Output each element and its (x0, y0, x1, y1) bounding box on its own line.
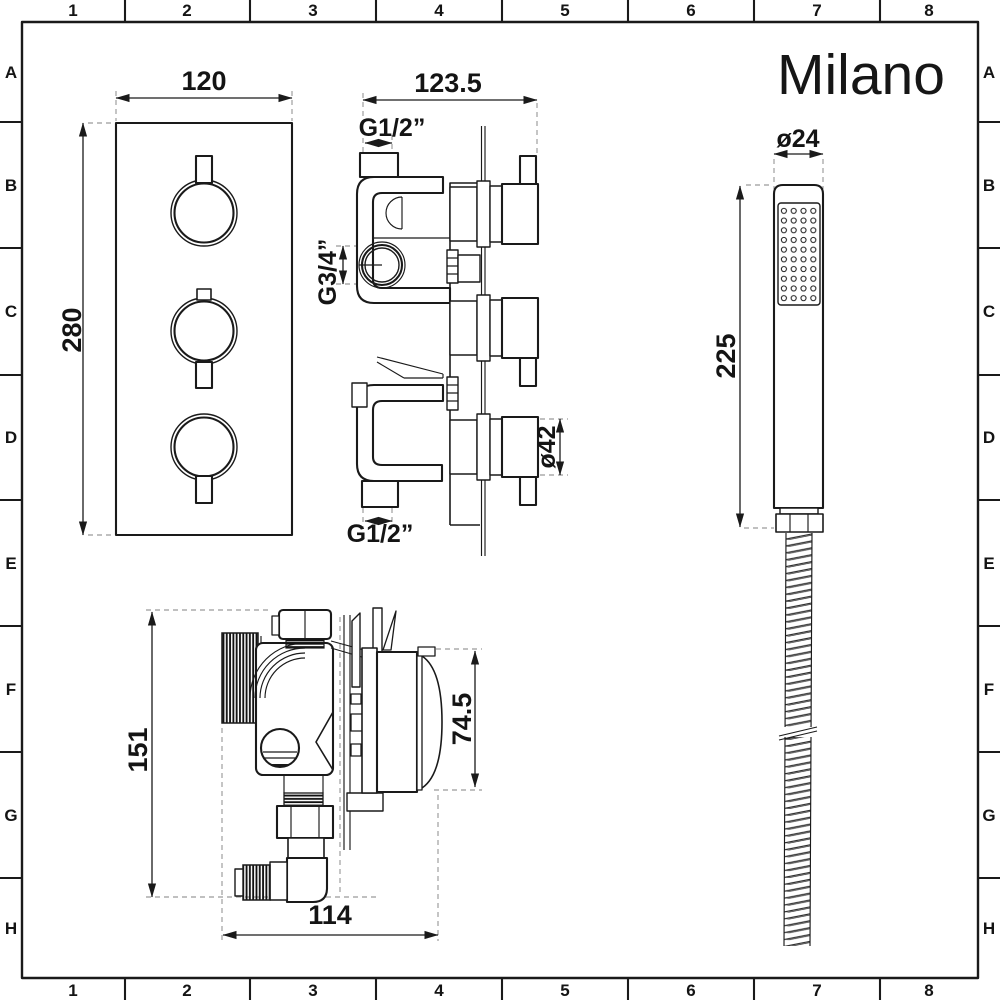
handle-body (502, 184, 538, 244)
inlet-port-bottom (362, 481, 398, 507)
dim-top-connection: G1/2” (359, 114, 426, 142)
col-label: 8 (924, 981, 933, 1000)
outlet-thread-collar (286, 639, 324, 648)
clip (351, 694, 361, 704)
body-block (458, 255, 480, 282)
row-label: H (5, 919, 17, 938)
row-label: E (5, 554, 16, 573)
logo-text: Milano (777, 43, 945, 107)
col-label: 3 (308, 981, 317, 1000)
outlet-threads-bottom (284, 793, 323, 806)
col-label: 8 (924, 1, 933, 20)
col-label: 6 (686, 981, 695, 1000)
handle-neck (490, 300, 502, 356)
bracket-tab (352, 383, 367, 407)
col-label: 2 (182, 1, 191, 20)
dim-length: 225 (711, 333, 741, 378)
row-label: G (4, 806, 17, 825)
cartridge-body (377, 652, 417, 792)
row-label: H (983, 919, 995, 938)
row-label: C (5, 302, 17, 321)
row-label: B (983, 176, 995, 195)
col-label: 3 (308, 1, 317, 20)
col-label: 1 (68, 1, 77, 20)
handle-collar (477, 414, 490, 480)
shower-hose-coil (784, 533, 812, 946)
hex-nut-flat (272, 616, 279, 635)
inlet-port-top (360, 153, 398, 177)
col-label: 6 (686, 1, 695, 20)
handle-lever (520, 358, 536, 386)
col-label: 2 (182, 981, 191, 1000)
handle-collar (477, 295, 490, 361)
hose-nut (776, 514, 823, 532)
row-label: D (5, 428, 17, 447)
cartridge-tab (418, 647, 435, 656)
row-label: B (5, 176, 17, 195)
handle-base (450, 420, 477, 474)
handle-body (502, 298, 538, 358)
row-label: F (984, 680, 994, 699)
handset-neck (780, 508, 818, 514)
mounting-plate (352, 613, 360, 687)
technical-drawing-sheet: 1 2 3 4 5 6 7 8 1 2 3 4 5 6 7 8 A B C D … (0, 0, 1000, 1000)
handle-lever (196, 476, 212, 503)
row-label: A (983, 63, 995, 82)
col-label: 7 (812, 981, 821, 1000)
handle-indicator (197, 289, 211, 300)
handle-lever (520, 156, 536, 184)
dim-head-diameter: ø24 (776, 125, 819, 153)
col-label: 1 (68, 981, 77, 1000)
dim-bottom-connection: G1/2” (347, 520, 414, 548)
handle-base (450, 301, 477, 355)
handle-collar (477, 181, 490, 247)
row-label: C (983, 302, 995, 321)
compression-nut (277, 806, 333, 838)
handle-lever (520, 477, 536, 505)
threaded-inlet-left (222, 633, 258, 723)
col-label: 7 (812, 1, 821, 20)
cartridge-ring (417, 655, 422, 790)
dim-width: 120 (181, 66, 226, 96)
handle-base (450, 187, 477, 241)
cartridge-flange (362, 648, 377, 793)
handle-neck (490, 186, 502, 242)
dim-handle-diameter: ø42 (533, 425, 561, 468)
handle-lever (196, 156, 212, 183)
col-label: 4 (434, 981, 444, 1000)
col-label: 5 (560, 981, 569, 1000)
lower-block (347, 793, 383, 811)
bracket-fin (373, 608, 382, 652)
clip (351, 744, 361, 756)
spray-nozzles (780, 206, 819, 303)
dim-height: 280 (57, 307, 87, 352)
milano-logo: Milano (777, 43, 945, 107)
outlet-cylinder (288, 838, 324, 858)
valve-body-outline (256, 643, 333, 775)
col-label: 5 (560, 1, 569, 20)
dim-cartridge: 74.5 (447, 693, 477, 746)
threaded-outlet-elbow (243, 865, 270, 900)
row-label: F (6, 680, 16, 699)
elbow-body (287, 858, 327, 902)
sheet-background (0, 0, 1000, 1000)
row-label: G (982, 806, 995, 825)
col-label: 4 (434, 1, 444, 20)
row-label: D (983, 428, 995, 447)
dim-side-connection: G3/4” (314, 239, 342, 306)
row-label: E (983, 554, 994, 573)
dim-height: 151 (123, 727, 153, 772)
handle-lever (196, 362, 212, 388)
elbow-link (270, 862, 287, 900)
row-label: A (5, 63, 17, 82)
thread-end-cap (235, 869, 243, 896)
handle-neck (490, 419, 502, 475)
dim-width: 114 (308, 900, 352, 930)
dim-depth: 123.5 (414, 68, 482, 98)
